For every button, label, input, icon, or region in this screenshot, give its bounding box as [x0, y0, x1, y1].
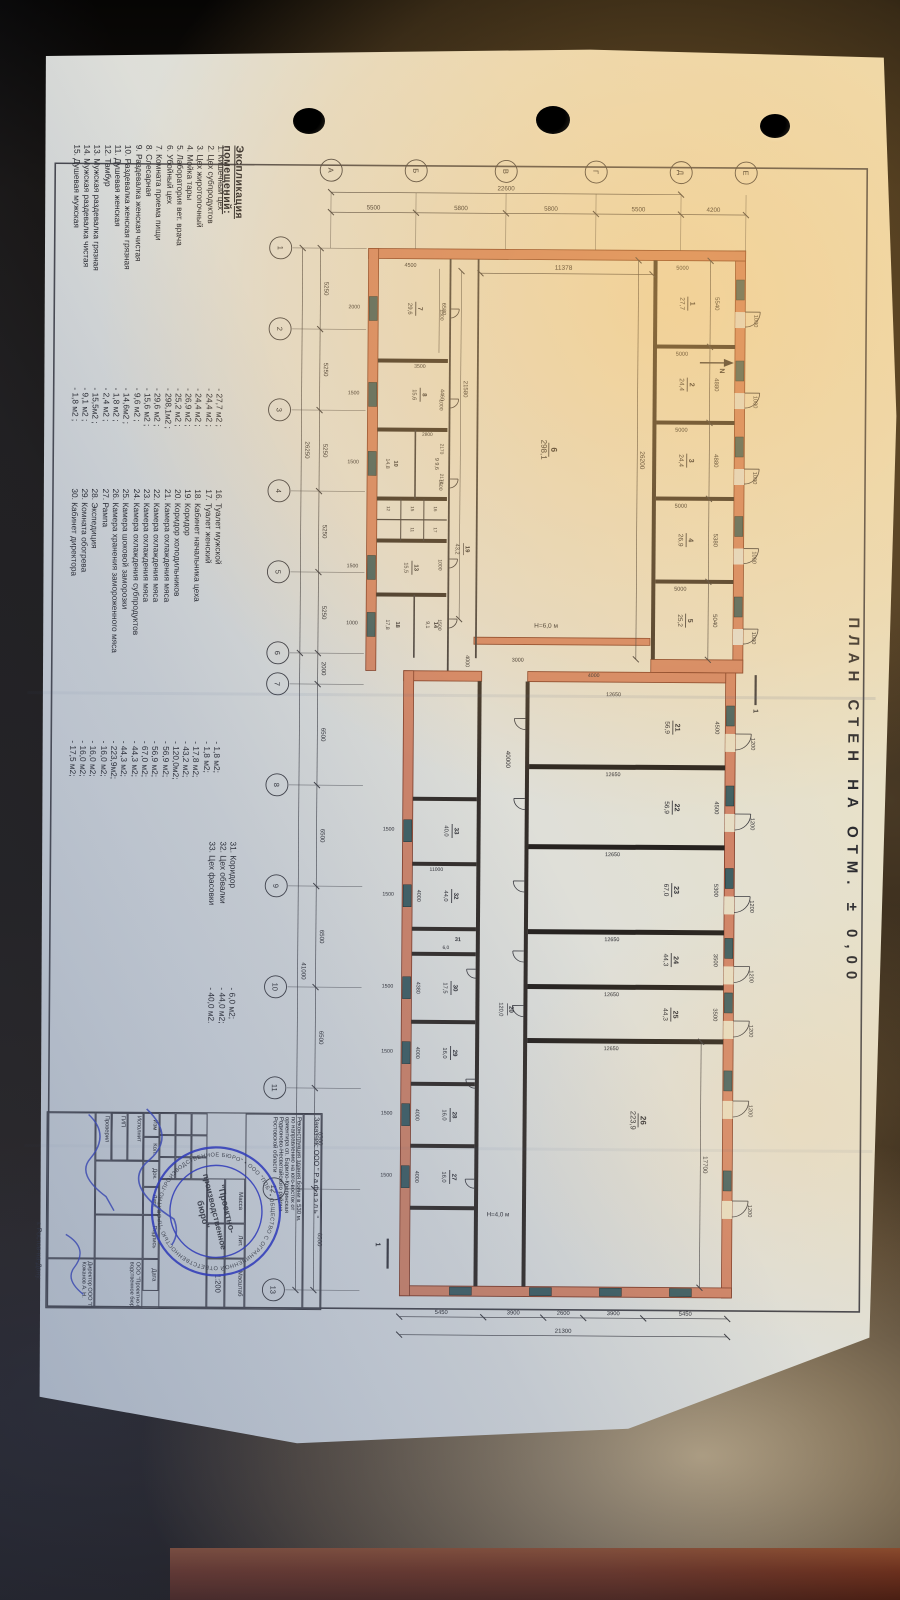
plan-label: 3500 [711, 1008, 717, 1021]
wall [376, 592, 446, 596]
plan-label: 24,4 [678, 378, 685, 391]
plan-label: 9,1 [424, 621, 430, 628]
plan-label: 11000 [430, 867, 444, 873]
plan-label: 3500 [712, 954, 718, 967]
plan-label: 4880 [713, 378, 719, 392]
plan-label: 5540 [713, 297, 719, 311]
plan-label: 1500 [382, 892, 394, 898]
plan-line [399, 1335, 727, 1337]
wall [733, 629, 743, 645]
plan-label: 27,7 [678, 297, 685, 310]
wall [377, 428, 447, 432]
plan-line [459, 271, 461, 619]
plan-label: 29,6 [406, 303, 412, 315]
plan-label: 5040 [711, 614, 717, 628]
door-arc [450, 399, 459, 408]
plan-label: 6580 [440, 303, 446, 315]
plan-line [293, 248, 367, 249]
plan-label: 41000 [300, 962, 307, 980]
plan-label: 67,0 [662, 884, 669, 897]
plan-label: Н=4,0 м [487, 1211, 510, 1218]
wall [656, 420, 734, 425]
plan-label: 29 [451, 1050, 458, 1057]
wall [735, 393, 745, 409]
plan-label: 21 [673, 724, 680, 732]
plan-label: 5800 [454, 205, 468, 212]
door-arc [514, 718, 525, 729]
window-segment [735, 516, 743, 536]
plan-label: 1000 [436, 559, 442, 570]
photo-scene: 100055405000127,7100048805000224,4100048… [0, 0, 900, 1600]
plan-label: 1500 [382, 984, 394, 990]
window-segment [402, 1104, 410, 1126]
plan-label: 26200 [638, 451, 645, 470]
plan-label: 15,6 [411, 389, 417, 400]
plan-label: 6500 [319, 829, 326, 843]
window-segment [403, 885, 411, 907]
plan-label: 3 [275, 408, 284, 412]
plan-label: 1200 [746, 1205, 752, 1217]
explication-col-3: 31. Коридор- 6,0 м2;32. Цех обвалки- 44,… [206, 841, 239, 1101]
plan-label: 120,0 [497, 1002, 503, 1016]
punch-hole-1 [293, 108, 325, 134]
plan-label: 16,0 [441, 1109, 447, 1120]
wall [412, 952, 476, 956]
plan-line [290, 572, 364, 573]
plan-label: 2170 [438, 474, 444, 485]
window-segment [404, 820, 412, 842]
wall [473, 681, 481, 1286]
door-arc [513, 881, 524, 892]
plan-line [448, 259, 451, 671]
plan-label: 5250 [322, 363, 329, 377]
explication-col-2: 16. Туалет мужской- 1,8 м2;17. Туалет же… [67, 488, 224, 834]
wall [528, 929, 724, 935]
plan-line [708, 261, 711, 660]
plan-label: 1000 [751, 472, 757, 484]
signature-scribbles [31, 1096, 193, 1327]
wall [412, 862, 476, 866]
plan-label: Г [591, 170, 600, 174]
plan-label: 40000 [504, 751, 511, 769]
window-segment [401, 1166, 409, 1188]
plan-label: 5500 [367, 204, 381, 211]
plan-label: 2170 [438, 444, 444, 455]
wall [723, 1021, 733, 1039]
plan-label: 44,3 [662, 954, 669, 967]
plan-label: 1500 [347, 459, 359, 465]
plan-label: 1 [276, 246, 285, 250]
window-segment [449, 1287, 471, 1295]
window-segment [726, 786, 734, 806]
wall [412, 927, 476, 931]
plan-label: 56,9 [663, 721, 670, 734]
plan-label: 4000 [588, 673, 600, 679]
plan-label: 5250 [321, 525, 328, 539]
window-segment [369, 296, 377, 320]
plan-label: 12650 [604, 1046, 619, 1052]
plan-label: 19 [464, 546, 470, 553]
wall [733, 548, 743, 564]
window-segment [402, 1042, 410, 1064]
plan-label: 5250 [322, 282, 329, 296]
plan-label: 2000 [320, 662, 327, 676]
plan-label: 298,1 [539, 440, 548, 461]
plan-label: 5 [686, 619, 693, 623]
plan-label: 3900 [607, 1311, 620, 1317]
wall [725, 734, 735, 752]
plan-label: 5000 [675, 428, 687, 434]
wall [411, 1082, 475, 1086]
plan-label: Е [741, 171, 750, 176]
plan-label: 8 [272, 783, 281, 787]
plan-label: 5 [273, 570, 282, 574]
wall [722, 1201, 732, 1219]
wall [528, 844, 724, 850]
window-segment [736, 280, 744, 300]
plan-label: 5500 [632, 206, 646, 213]
window-segment [725, 868, 733, 888]
plan-label: 3 [687, 459, 694, 463]
plan-label: 1000 [750, 551, 756, 563]
plan-label: Н=6,0 м [534, 623, 558, 630]
plan-label: 6500 [319, 728, 326, 742]
plan-label: 11 [270, 1084, 279, 1092]
plan-label: 43,2 [454, 544, 460, 555]
window-segment [367, 555, 375, 579]
plan-label: 4 [687, 538, 694, 542]
plan-label: 17 [433, 527, 438, 533]
plan-label: 5000 [674, 587, 686, 593]
door-arc [450, 309, 459, 318]
wall [411, 1020, 475, 1024]
door-arc [513, 951, 524, 962]
wall [724, 966, 734, 984]
plan-label: 5250 [321, 444, 328, 458]
plan-label: 1500 [381, 1111, 393, 1117]
plan-label: 4000 [464, 655, 470, 667]
plan-label: 16,0 [441, 1047, 447, 1058]
plan-label: 16 [433, 506, 438, 512]
grid-cell [191, 1113, 207, 1135]
plan-label: 1 [374, 1243, 381, 1247]
plan-label: N [718, 368, 725, 373]
plan-label: 1000 [752, 315, 758, 327]
window-segment [723, 1171, 731, 1191]
plan-label: 1 [751, 709, 758, 713]
plan-label: 6,0 [442, 945, 449, 951]
plan-label: 33 [453, 828, 460, 835]
explication-item: 31. Коридор- 6,0 м2; [226, 841, 238, 1101]
plan-label: 9 9,6 [433, 458, 439, 470]
plan-label: 1000 [750, 632, 756, 644]
plan-label: 1 [688, 302, 695, 306]
window-segment [529, 1288, 551, 1296]
plan-label: 11378 [555, 265, 573, 272]
wall [724, 896, 734, 914]
plan-label: 5000 [675, 504, 687, 510]
plan-label: 32 [452, 893, 459, 900]
plan-label: 1200 [747, 1025, 753, 1037]
plan-line [292, 410, 366, 411]
punch-hole-2 [536, 106, 570, 134]
plan-label: 2 [275, 327, 284, 331]
plan-label: 26250 [303, 441, 310, 459]
plan-line [291, 491, 365, 492]
plan-label: 10 [270, 983, 279, 991]
wall [657, 344, 735, 349]
window-segment [367, 612, 375, 636]
plan-label: 24 [672, 956, 679, 964]
plan-label: 1000 [752, 396, 758, 408]
plan-label: 5000 [676, 266, 688, 272]
plan-label: 10 [392, 460, 398, 466]
window-segment [368, 451, 376, 475]
plan-label: 1500 [381, 1049, 393, 1055]
wall [734, 469, 744, 485]
door-arc [514, 798, 525, 809]
plan-label: 25 [671, 1011, 678, 1019]
plan-label: 2800 [422, 432, 433, 438]
plan-label: 2000 [348, 304, 360, 310]
punch-hole-3 [760, 114, 790, 138]
plan-label: 14,8 [384, 458, 390, 468]
plan-label: 2600 [557, 1311, 570, 1317]
plan-label: 4500 [713, 801, 719, 814]
plan-line [476, 259, 479, 658]
plan-label: 8 [421, 393, 428, 397]
wall [369, 248, 746, 261]
wall [377, 496, 447, 500]
drawing-sheet: 100055405000127,7100048805000224,4100048… [22, 56, 880, 1517]
plan-line [331, 212, 746, 215]
plan-label: 12650 [604, 937, 619, 943]
plan-label: 4460 [439, 389, 445, 401]
wall [521, 682, 529, 1287]
wood-ledge [170, 1548, 900, 1600]
plan-label: 5800 [544, 206, 558, 213]
plan-label: 3500 [414, 364, 426, 370]
window-segment [724, 1071, 732, 1091]
plan-label: 4000 [414, 1109, 420, 1121]
plan-label: 3000 [512, 657, 524, 663]
plan-line [289, 785, 363, 786]
plan-label: 12650 [605, 772, 620, 778]
plan-label: 1200 [749, 738, 755, 750]
window-segment [735, 437, 743, 457]
plan-label: 21580 [462, 381, 468, 398]
plan-label: 1200 [748, 900, 754, 912]
window-segment [736, 361, 744, 381]
explication-col-1: 1. Кишечный цех- 27,7 м2 ;2. Цех субпрод… [70, 144, 227, 485]
plan-label: 26,9 [677, 534, 684, 547]
plan-label: Д [676, 170, 685, 175]
wall [656, 496, 734, 501]
plan-label: 4 [274, 489, 283, 493]
plan-label: 12650 [605, 852, 620, 858]
wall [527, 1038, 723, 1044]
wall [528, 984, 724, 990]
plan-label: 5450 [679, 1312, 692, 1318]
plan-label: 4200 [707, 207, 721, 214]
plan-label: 6500 [317, 1031, 324, 1045]
plan-label: 15,5 [402, 562, 408, 573]
plan-label: 1200 [749, 818, 755, 830]
north-arrow [724, 359, 734, 367]
plan-label: 24,4 [677, 454, 684, 467]
plan-label: 4500 [713, 721, 719, 734]
plan-label: 4000 [414, 1047, 420, 1059]
plan-label: 1000 [438, 399, 444, 410]
wall [723, 1101, 733, 1119]
plan-label: 25,2 [676, 614, 683, 627]
wall [410, 1206, 474, 1210]
plan-label: 11 [410, 527, 415, 532]
door-arc [465, 1179, 474, 1188]
plan-label: 223,9 [629, 1111, 638, 1130]
door-arc [448, 559, 457, 568]
plan-line [287, 1088, 361, 1089]
window-segment [734, 597, 742, 617]
plan-label: 44,3 [661, 1008, 668, 1021]
window-segment [669, 1289, 691, 1297]
wall [651, 659, 743, 673]
window-segment [724, 993, 732, 1013]
explication-item: 33. Цех фасовки- 40,0 м2. [206, 841, 218, 1101]
plan-label: 9 [271, 884, 280, 888]
plan-label: 22600 [497, 185, 515, 192]
window-segment [726, 706, 734, 726]
plan-label: 30 [451, 985, 458, 992]
plan-label: 40,0 [443, 825, 449, 836]
plan-label: 31 [455, 937, 461, 943]
plan-label: 1500 [348, 390, 360, 396]
plan-label: 22 [673, 804, 680, 812]
plan-label: 56,9 [663, 801, 670, 814]
plan-label: 4500 [405, 263, 417, 269]
plan-label: В [501, 169, 510, 174]
plan-label: 12650 [604, 992, 619, 998]
plan-label: 44,0 [442, 890, 448, 901]
plan-label: 13 [412, 564, 418, 571]
plan-label: 20 [507, 1006, 514, 1013]
plan-label: 2 [688, 383, 695, 387]
wall [378, 359, 448, 363]
wall [529, 764, 725, 770]
plan-line [290, 684, 364, 685]
window-segment [369, 382, 377, 406]
plan-label: 7 [273, 682, 282, 686]
plan-label: 21300 [555, 1329, 572, 1335]
wall [528, 672, 726, 683]
plan-label: 16,0 [440, 1171, 446, 1182]
wall [725, 814, 735, 832]
plan-label: А [326, 168, 335, 173]
wall [651, 260, 658, 659]
window-segment [725, 938, 733, 958]
plan-label: Б [411, 168, 420, 173]
wall [655, 579, 733, 584]
explication-item: 32. Цех обвалки- 44,0 м2; [216, 841, 228, 1101]
plan-label: 6 [549, 447, 559, 452]
customer-cell: Заказчик: ООО " Р а ф а э л ь " [302, 1114, 321, 1309]
plan-label: 6 [273, 651, 282, 655]
plan-label: 4000 [413, 1171, 419, 1183]
plan-label: 1200 [747, 1105, 753, 1117]
plan-label: 27 [450, 1174, 457, 1181]
window-segment [599, 1288, 621, 1296]
plan-label: 5380 [712, 534, 718, 548]
door-arc [448, 619, 457, 628]
plan-label: 18 [394, 622, 400, 628]
wall [404, 671, 482, 682]
plan-label: 1200 [748, 970, 754, 982]
plan-label: 4880 [712, 454, 718, 468]
plan-label: 5300 [712, 884, 718, 897]
plan-line [288, 987, 362, 988]
plan-line [290, 653, 364, 654]
plan-label: 5000 [676, 352, 688, 358]
wall [413, 797, 477, 801]
plan-label: 7 [416, 307, 423, 311]
plan-line [288, 886, 362, 887]
door-arc [467, 969, 476, 978]
plan-label: 17,8 [384, 619, 390, 629]
plan-label: 17700 [701, 1156, 708, 1174]
plan-label: 6500 [318, 930, 325, 944]
plan-label: 1000 [346, 620, 358, 626]
plan-line [292, 329, 366, 330]
plan-label: 12 [386, 506, 391, 512]
plan-label: 4380 [414, 982, 420, 994]
window-segment [402, 977, 410, 999]
plan-label: 23 [672, 886, 679, 894]
wall [735, 312, 745, 328]
drawing-title: ПЛАН СТЕН НА ОТМ. ± 0,00 [842, 562, 862, 1042]
plan-label: 28 [451, 1112, 458, 1119]
plan-label: 1500 [383, 827, 395, 833]
plan-line [481, 273, 653, 274]
plan-label: 1500 [380, 1173, 392, 1179]
wall [474, 637, 650, 645]
plan-label: 14 [432, 622, 438, 629]
plan-label: 3900 [507, 1310, 520, 1316]
plan-label: 5450 [435, 1310, 448, 1316]
plan-label: 15 [410, 506, 415, 512]
door-arc [449, 479, 458, 488]
plan-label: 5250 [320, 606, 327, 620]
plan-label: 4000 [415, 890, 421, 902]
wall [377, 538, 447, 542]
plan-label: 1500 [347, 563, 359, 569]
plan-label: 26 [639, 1116, 648, 1126]
plan-label: 17,5 [441, 982, 447, 993]
